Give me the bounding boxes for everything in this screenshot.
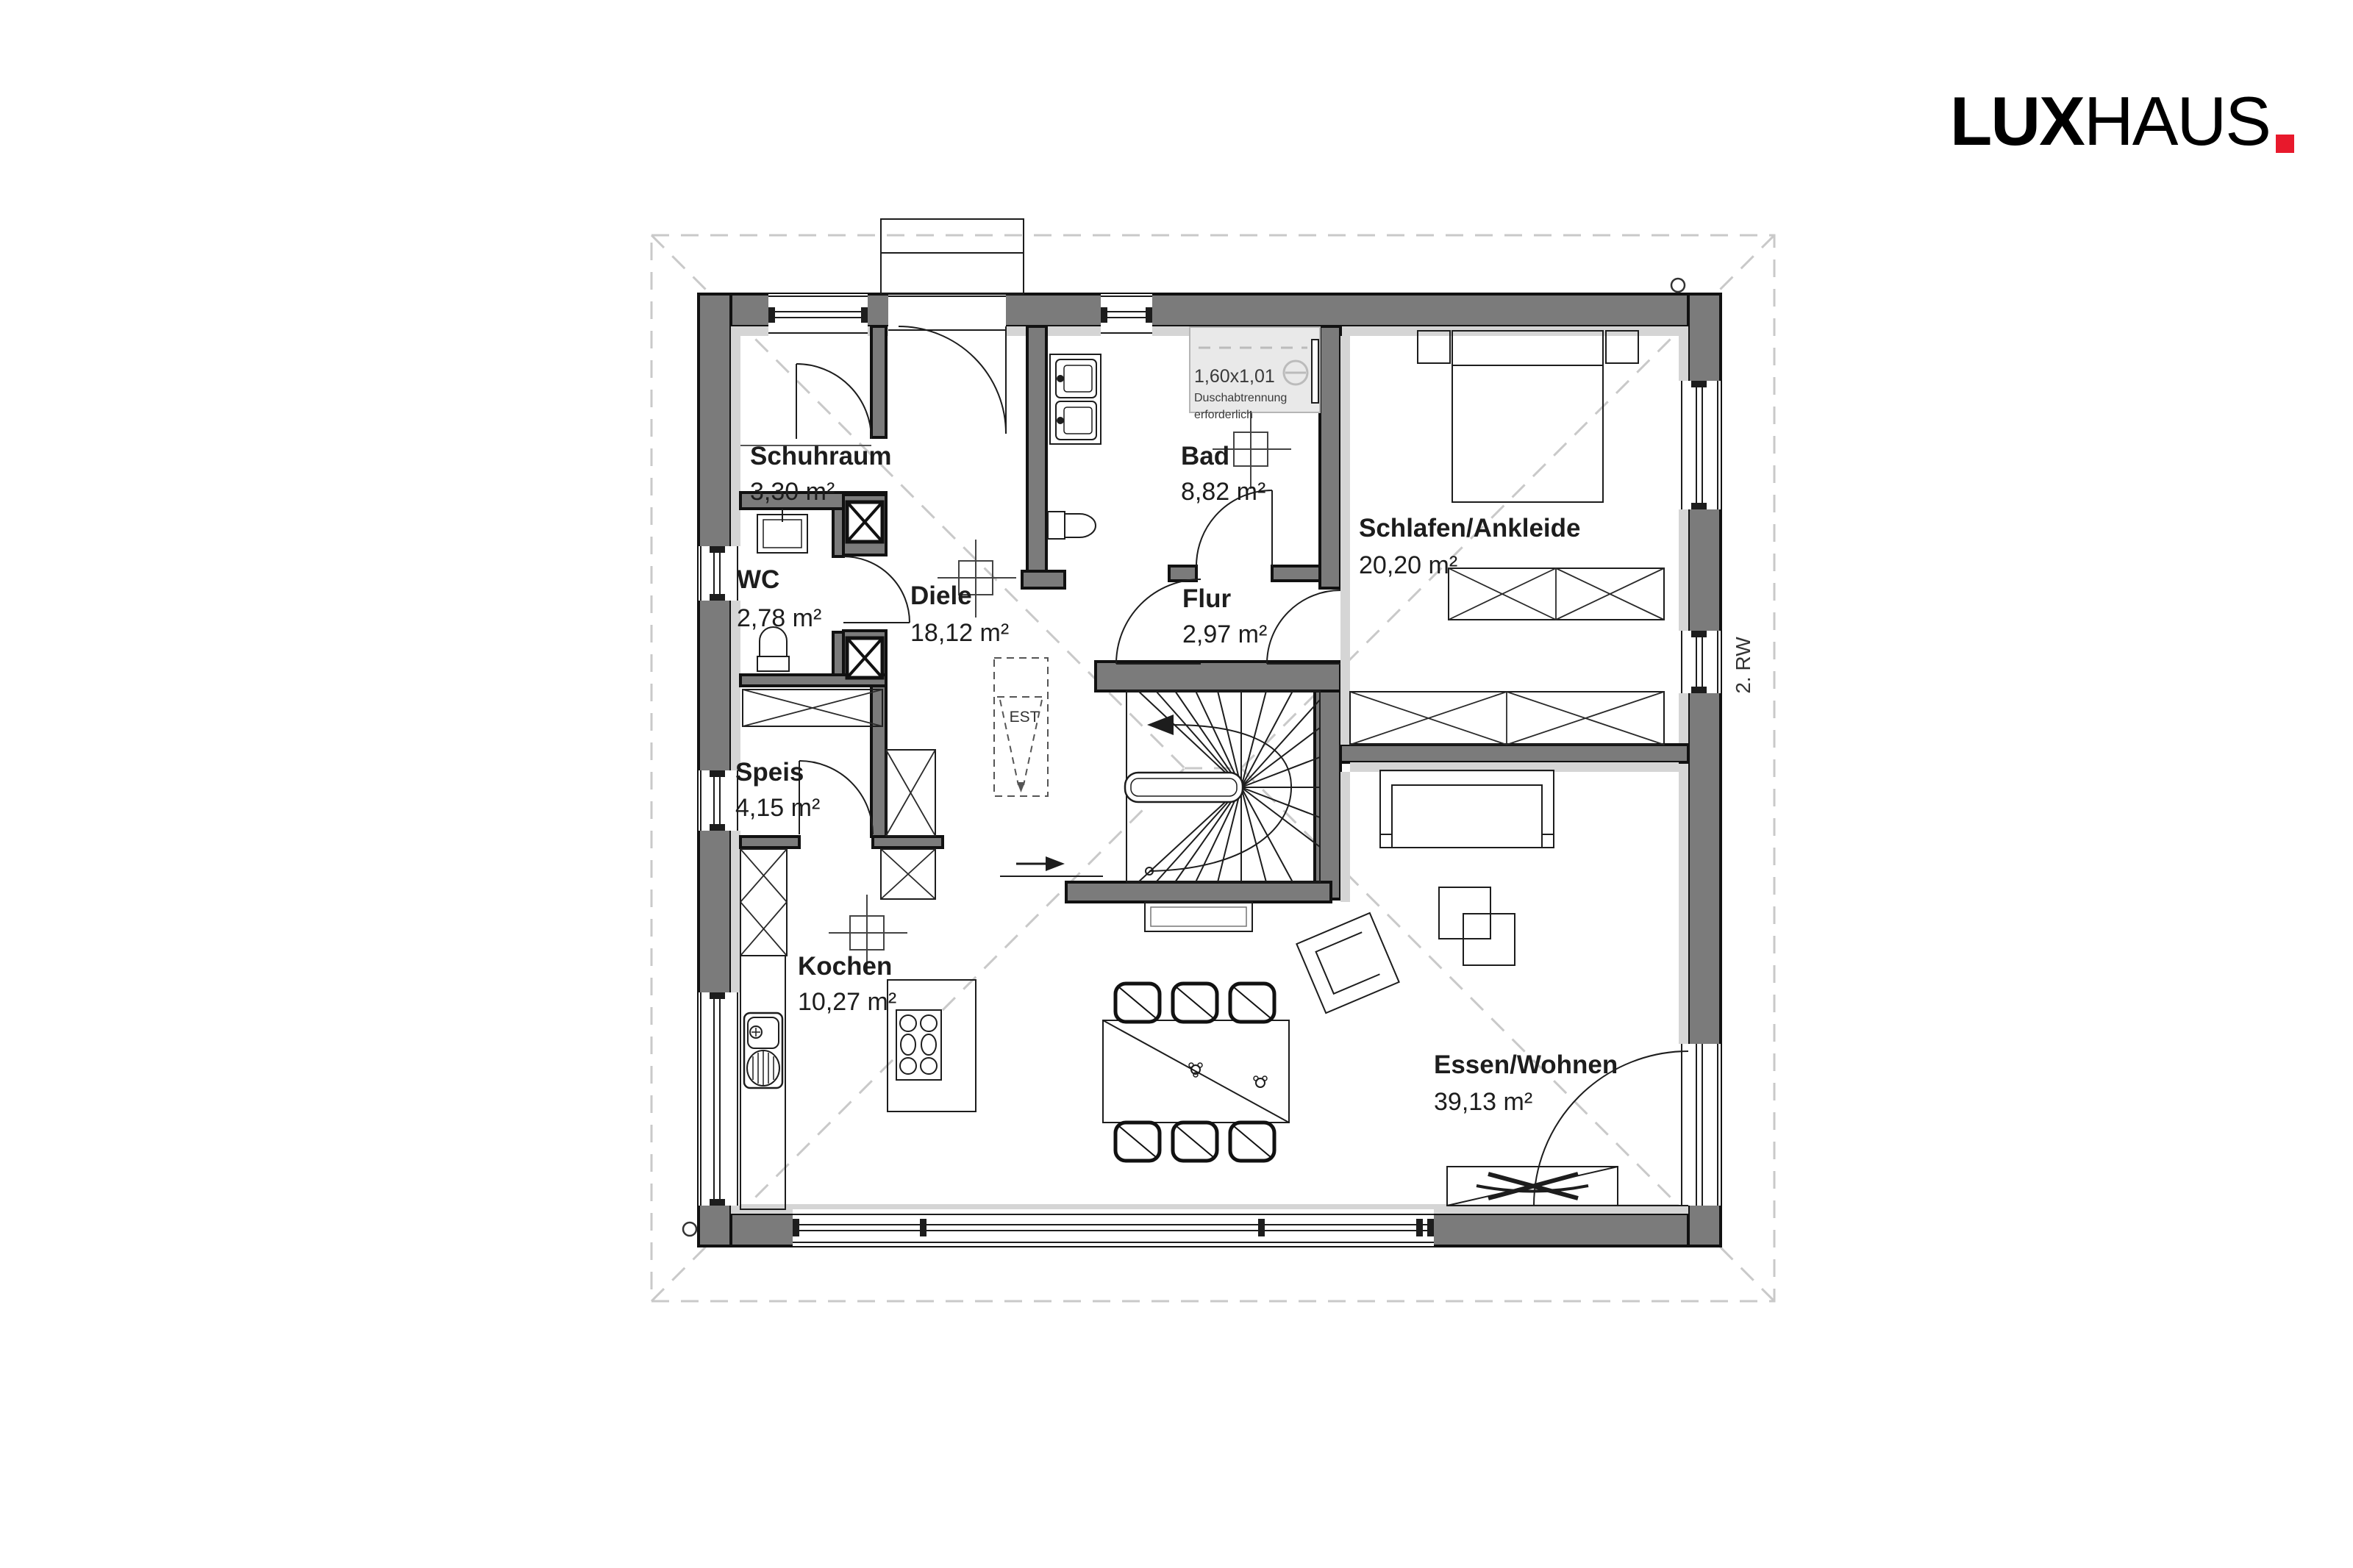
window-schuhraum (768, 294, 868, 336)
corner-marker-bottom-left (683, 1222, 696, 1236)
installation-shaft-bottom (847, 638, 882, 678)
shower-note-line2: Duschabtrennung (1194, 392, 1287, 404)
room-name: Bad (1181, 442, 1229, 470)
table-decor (1189, 1063, 1267, 1087)
kitchen-counter (740, 956, 785, 1209)
shower: 1,60x1,01 Duschabtrennung erforderlich (1190, 327, 1320, 421)
shower-size-label: 1,60x1,01 (1194, 366, 1275, 387)
kitchen-tall-unit-right (881, 849, 935, 899)
room-area: 10,27 m² (798, 988, 896, 1016)
window-speis (699, 770, 740, 831)
room-name: Schuhraum (750, 442, 892, 470)
room-label-diele: Diele 18,12 m² (910, 581, 1009, 647)
door-schuhraum (796, 364, 871, 439)
room-label-speis: Speis 4,15 m² (735, 758, 820, 822)
side-annotation-2rw: 2. RW (1732, 637, 1754, 694)
room-area: 2,78 m² (737, 604, 821, 632)
sideboard (1447, 1167, 1618, 1206)
wardrobe-bottom (1350, 692, 1664, 745)
toilet-bad (1048, 512, 1096, 539)
entrance-door (888, 294, 1006, 434)
room-name: Kochen (798, 952, 892, 981)
room-area: 3,30 m² (750, 478, 835, 506)
window-schlafen-lower (1679, 631, 1721, 693)
est-distribution-box: EST (994, 658, 1048, 796)
corner-marker-top-right (1671, 279, 1685, 292)
window-schlafen-upper (1679, 381, 1721, 509)
room-name: Speis (735, 758, 804, 787)
kitchen-tall-unit-left (740, 849, 787, 956)
room-label-flur: Flur 2,97 m² (1182, 584, 1267, 648)
room-area: 4,15 m² (735, 794, 820, 822)
kitchen-island (888, 980, 976, 1111)
sofa (1380, 770, 1554, 848)
room-label-kochen: Kochen 10,27 m² (798, 952, 896, 1016)
room-name: Flur (1182, 584, 1231, 613)
double-washbasin (1050, 354, 1101, 444)
tall-cabinet-column (886, 750, 935, 836)
dining-table (1103, 1020, 1289, 1123)
bed (1452, 331, 1603, 502)
stair-handrail (1125, 773, 1243, 802)
wardrobe-middle (1449, 568, 1664, 620)
speis-cabinet (743, 690, 882, 726)
armchair (1296, 913, 1399, 1013)
door-schlafen (1267, 590, 1340, 664)
room-label-bad: Bad 8,82 m² (1181, 442, 1265, 506)
room-area: 8,82 m² (1181, 478, 1265, 506)
room-area: 20,20 m² (1359, 551, 1457, 579)
room-area: 2,97 m² (1182, 620, 1267, 648)
coffee-tables (1439, 887, 1515, 965)
window-bad (1101, 294, 1152, 336)
floor-plan-page: LUXHAUS (0, 0, 2353, 1568)
room-area: 18,12 m² (910, 619, 1009, 647)
entrance-porch (881, 219, 1024, 294)
room-label-schlafen: Schlafen/Ankleide 20,20 m² (1359, 514, 1580, 579)
stair-niche (1145, 902, 1252, 931)
est-label: EST (1010, 709, 1040, 726)
toilet-wc (757, 627, 789, 671)
cooktop (896, 1010, 941, 1080)
room-name: Essen/Wohnen (1434, 1050, 1618, 1079)
kitchen-sink (744, 1013, 782, 1088)
room-label-wc: WC 2,78 m² (737, 565, 821, 632)
room-name: Diele (910, 581, 972, 610)
window-kochen (699, 992, 740, 1206)
room-area: 39,13 m² (1434, 1088, 1532, 1116)
entry-direction-arrow (1000, 856, 1103, 876)
shower-note-line3: erforderlich (1194, 409, 1253, 421)
floor-plan-drawing: EST 1,60x1,01 Duschabtrennung erforderli… (0, 0, 2353, 1568)
washbasin-wc (757, 509, 807, 553)
door-wc (843, 556, 910, 623)
room-name: WC (737, 565, 779, 594)
window-band-south (793, 1209, 1434, 1246)
installation-shaft-top (847, 502, 882, 542)
room-label-essen: Essen/Wohnen 39,13 m² (1434, 1050, 1618, 1116)
room-name: Schlafen/Ankleide (1359, 514, 1580, 543)
window-wc (699, 546, 740, 601)
